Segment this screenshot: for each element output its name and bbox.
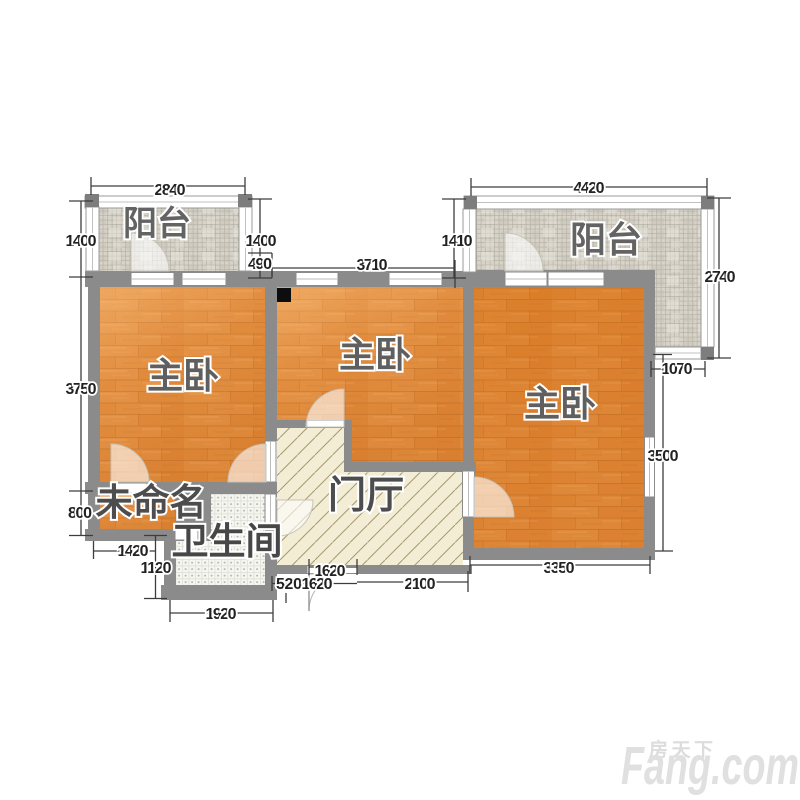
- svg-text:1920: 1920: [206, 606, 237, 623]
- svg-text:阳台: 阳台: [570, 219, 642, 260]
- svg-text:阳台: 阳台: [123, 205, 191, 243]
- svg-text:Fang.com: Fang.com: [621, 736, 799, 796]
- svg-text:2840: 2840: [155, 182, 186, 199]
- svg-text:490: 490: [248, 256, 272, 273]
- svg-text:3750: 3750: [66, 381, 97, 398]
- svg-text:3350: 3350: [544, 560, 575, 577]
- svg-text:800: 800: [68, 505, 92, 522]
- svg-text:1070: 1070: [662, 361, 693, 378]
- svg-text:3710: 3710: [357, 257, 388, 274]
- svg-text:卫生间: 卫生间: [172, 521, 283, 562]
- svg-text:1410: 1410: [442, 233, 473, 250]
- svg-text:1620: 1620: [302, 576, 333, 593]
- svg-text:门厅: 门厅: [328, 475, 404, 517]
- svg-text:2740: 2740: [705, 269, 736, 286]
- svg-text:1400: 1400: [66, 233, 97, 250]
- svg-text:主卧: 主卧: [524, 383, 596, 424]
- svg-text:4420: 4420: [574, 180, 605, 197]
- svg-text:主卧: 主卧: [147, 355, 219, 396]
- svg-text:520: 520: [276, 576, 302, 593]
- svg-text:1400: 1400: [246, 233, 277, 250]
- svg-text:1420: 1420: [118, 543, 149, 560]
- svg-text:未命名: 未命名: [96, 481, 207, 523]
- svg-text:2100: 2100: [405, 576, 436, 593]
- svg-text:1120: 1120: [141, 560, 172, 577]
- svg-text:3500: 3500: [648, 448, 679, 465]
- svg-text:主卧: 主卧: [339, 334, 411, 375]
